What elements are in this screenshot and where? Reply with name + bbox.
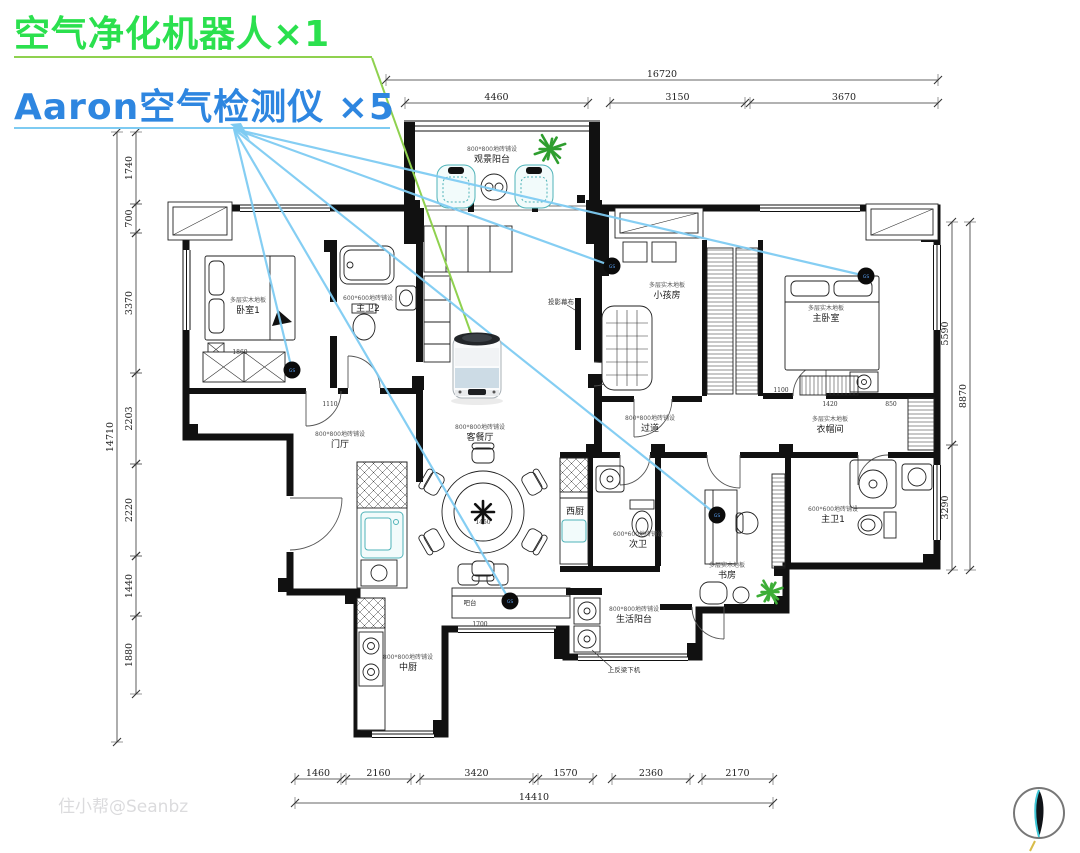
floor-finish-label: 多层实木地板 [230,296,266,304]
dimension-label: 1570 [553,768,577,779]
floor-finish-label: 800*800地砖铺设 [625,414,675,422]
wardrobe-column [736,248,758,394]
air-detector-dot: GS [284,362,301,379]
bookshelf [772,474,785,568]
floor-finish-label: 600*600地砖铺设 [613,530,663,538]
floor-finish-label: 800*800地砖铺设 [609,605,659,613]
plan-annotation: 吧台 [464,598,477,607]
room-name-label: 中厨 [399,661,417,673]
dimension-label: 700 [124,209,135,227]
inline-dim-text: 1100 [773,387,788,394]
dimension-label: 16720 [647,69,677,80]
dimension-label: 14410 [519,792,549,803]
room-name-label: 主卫2 [356,302,380,314]
floor-plan-page: 1672044603150367014410146021603420157023… [0,0,1080,853]
detector-legend-label: Aaron空气检测仪 ×5 [14,87,395,128]
floor-finish-label: 多层实木地板 [808,304,844,312]
floor-finish-label: 800*800地砖铺设 [383,653,433,661]
air-purifier-robot [451,333,503,406]
air-detector-dot: GS [858,268,875,285]
inline-dim-text: 1700 [472,621,487,628]
projector-screen [575,298,581,350]
floor-finish-label: 600*600地砖铺设 [808,505,858,513]
inline-dim-text: 1450 [475,519,490,526]
dimension-label: 1440 [124,574,135,598]
balcony-chair [437,165,475,208]
floor-finish-label: 多层实木地板 [709,561,745,569]
svg-text:GS: GS [289,368,295,374]
room-name-label: 次卫 [629,538,647,550]
dimension-label: 14710 [105,422,116,452]
floor-finish-label: 多层实木地板 [812,415,848,423]
dimension-label: 3420 [464,768,488,779]
floor-finish-label: 600*600地砖铺设 [343,294,393,302]
dimension-label: 3150 [665,92,689,103]
room-name-label: 衣帽间 [816,423,843,435]
room-name-label: 卧室1 [236,304,260,316]
dimension-label: 4460 [484,92,508,103]
room-name-label: 书房 [718,569,736,581]
dimension-label: 3370 [124,291,135,315]
room-name-label: 小孩房 [653,289,680,301]
plan-annotation: 上反梁下机 [608,665,641,674]
svg-text:GS: GS [714,513,720,519]
dimension-label: 3290 [940,495,951,519]
dimension-label: 2360 [639,768,663,779]
room-name-label: 西厨 [566,506,584,517]
dimension-label: 1460 [306,768,330,779]
dimension-label: 2220 [124,498,135,522]
inline-dim-text: 1110 [322,401,337,408]
purifier-legend-label: 空气净化机器人×1 [14,14,330,55]
floor-finish-label: 800*800地砖铺设 [315,430,365,438]
room-name-label: 客餐厅 [466,431,493,443]
room-name-label: 过道 [641,422,659,434]
closet-hatch [203,352,285,382]
inline-dim-text: 1420 [822,401,837,408]
wardrobe-hatch [800,376,858,395]
dimension-label: 1880 [124,643,135,667]
inline-dim-text: 850 [885,401,897,408]
room-name-label: 主卫1 [821,513,845,525]
floor-plan-drawing: 1672044603150367014410146021603420157023… [0,0,1080,853]
svg-text:GS: GS [863,274,869,280]
wardrobe-column [707,248,733,394]
svg-text:GS: GS [609,264,615,270]
dimension-label: 2170 [725,768,749,779]
floor-finish-label: 多层实木地板 [649,281,685,289]
room-name-label: 主卧室 [812,312,839,324]
room-name-label: 观景阳台 [474,153,510,165]
dimension-label: 3670 [832,92,856,103]
floor-finish-label: 800*800地砖铺设 [467,145,517,153]
dimension-label: 1740 [124,156,135,180]
air-detector-dot: GS [709,507,726,524]
desk [705,490,737,564]
inline-dim-text: 1860 [232,349,247,356]
air-detector-dot: GS [502,593,519,610]
room-name-label: 生活阳台 [616,613,652,625]
plan-annotation: 投影幕布 [548,297,575,306]
room-name-label: 门厅 [331,438,349,450]
dimension-label: 8870 [958,384,969,408]
watermark: 住小帮@Seanbz [58,797,188,817]
dimension-label: 2160 [366,768,390,779]
dimension-label: 5590 [940,321,951,345]
dimension-label: 2203 [124,406,135,430]
svg-text:GS: GS [507,599,513,605]
floor-finish-label: 800*800地砖铺设 [455,423,505,431]
air-detector-dot: GS [604,258,621,275]
